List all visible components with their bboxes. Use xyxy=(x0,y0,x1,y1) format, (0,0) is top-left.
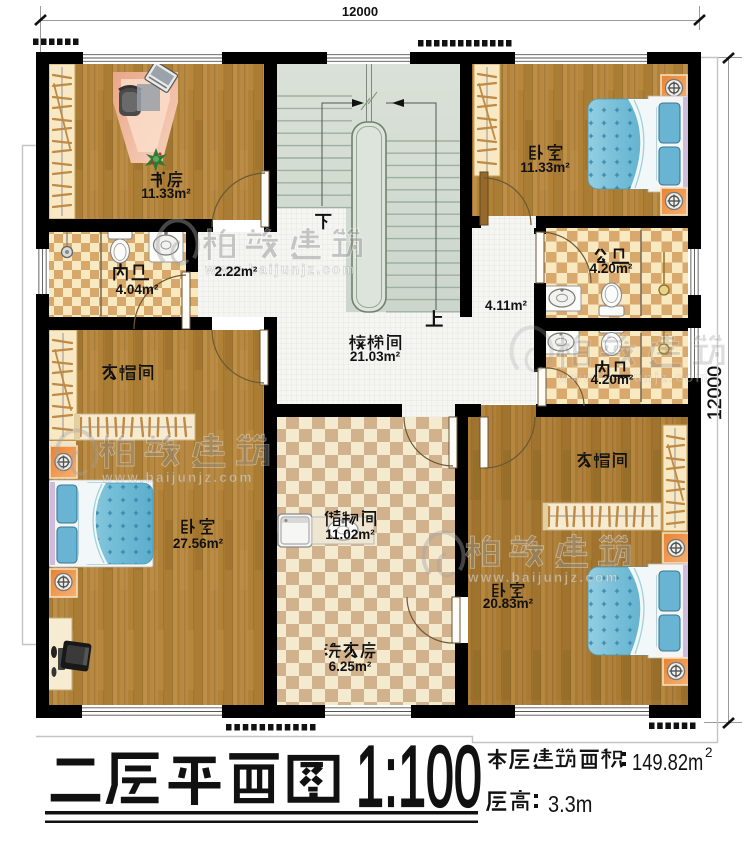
svg-text:4.11m²: 4.11m² xyxy=(485,298,528,313)
svg-text:3.3m: 3.3m xyxy=(548,790,592,817)
svg-text:2.22m²: 2.22m² xyxy=(215,264,258,279)
svg-text:4.20m²: 4.20m² xyxy=(590,261,633,276)
svg-text:2: 2 xyxy=(705,745,713,760)
svg-text:11.02m²: 11.02m² xyxy=(325,527,375,542)
svg-text:12000: 12000 xyxy=(342,4,378,19)
svg-text:11.33m²: 11.33m² xyxy=(520,160,570,175)
svg-text:6.25m²: 6.25m² xyxy=(329,659,372,674)
svg-text:21.03m²: 21.03m² xyxy=(350,349,401,364)
svg-text:27.56m²: 27.56m² xyxy=(173,536,224,551)
svg-text:4.04m²: 4.04m² xyxy=(116,282,159,297)
svg-text:www.baijunjz.com: www.baijunjz.com xyxy=(467,570,620,585)
svg-text:149.82m: 149.82m xyxy=(632,750,703,776)
svg-text:www.baijunjz.com: www.baijunjz.com xyxy=(101,470,254,485)
svg-text:4.20m²: 4.20m² xyxy=(591,372,634,387)
svg-text:20.83m²: 20.83m² xyxy=(483,596,534,611)
svg-text:11.33m²: 11.33m² xyxy=(141,186,191,201)
svg-text:1:100: 1:100 xyxy=(356,728,482,824)
